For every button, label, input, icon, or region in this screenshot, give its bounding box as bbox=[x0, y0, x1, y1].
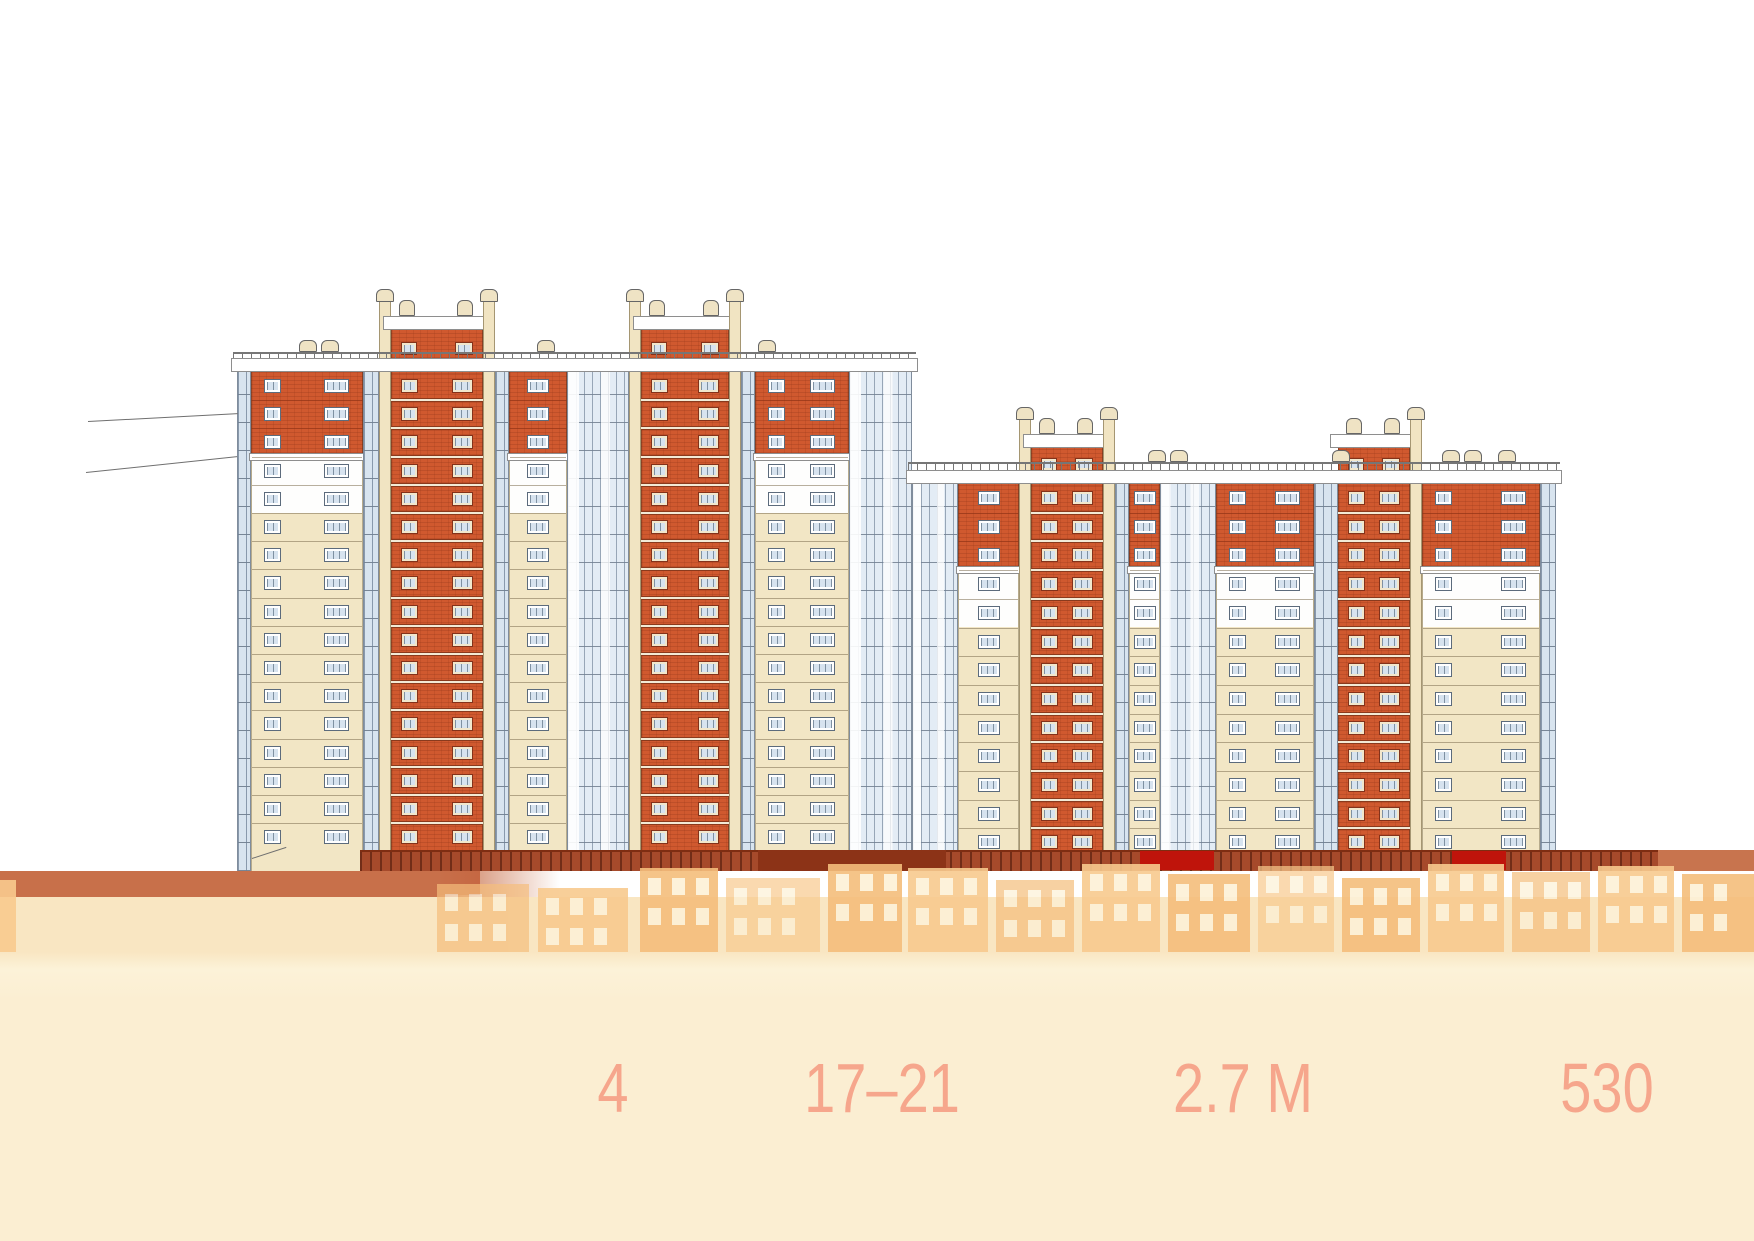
house-window bbox=[836, 904, 849, 921]
house-window bbox=[1436, 904, 1449, 921]
house-window bbox=[1052, 890, 1065, 907]
house-window bbox=[1460, 904, 1473, 921]
house-window bbox=[445, 894, 458, 911]
house-window bbox=[1398, 888, 1411, 905]
house-window bbox=[493, 894, 506, 911]
house-window bbox=[964, 908, 977, 925]
lowrise-house bbox=[1512, 872, 1590, 952]
house-window bbox=[940, 908, 953, 925]
lowrise-house bbox=[1428, 864, 1504, 952]
house-window bbox=[1568, 882, 1581, 899]
house-window bbox=[1630, 906, 1643, 923]
house-window bbox=[1606, 876, 1619, 893]
house-window bbox=[1374, 888, 1387, 905]
house-window bbox=[546, 898, 559, 915]
house-window bbox=[1484, 874, 1497, 891]
house-window bbox=[734, 918, 747, 935]
house-window bbox=[836, 874, 849, 891]
house-window bbox=[1004, 920, 1017, 937]
house-window bbox=[1654, 876, 1667, 893]
house-window bbox=[1714, 914, 1727, 931]
house-window bbox=[1568, 912, 1581, 929]
house-window bbox=[1314, 906, 1327, 923]
house-window bbox=[1544, 912, 1557, 929]
house-window bbox=[1350, 918, 1363, 935]
house-window bbox=[1114, 904, 1127, 921]
house-window bbox=[1544, 882, 1557, 899]
house-window bbox=[696, 878, 709, 895]
house-window bbox=[1520, 882, 1533, 899]
house-window bbox=[570, 898, 583, 915]
house-window bbox=[1714, 884, 1727, 901]
house-window bbox=[1484, 904, 1497, 921]
house-window bbox=[594, 898, 607, 915]
lowrise-house bbox=[538, 888, 628, 952]
house-window bbox=[758, 888, 771, 905]
house-window bbox=[1090, 874, 1103, 891]
house-window bbox=[1138, 874, 1151, 891]
house-window bbox=[1460, 874, 1473, 891]
house-window bbox=[758, 918, 771, 935]
house-window bbox=[916, 878, 929, 895]
house-window bbox=[672, 878, 685, 895]
house-window bbox=[1398, 918, 1411, 935]
house-window bbox=[1606, 906, 1619, 923]
house-window bbox=[782, 918, 795, 935]
residential-complex-elevation: 4 17–21 2.7 М 530 bbox=[0, 0, 1754, 1241]
house-window bbox=[1266, 876, 1279, 893]
house-window bbox=[964, 878, 977, 895]
house-window bbox=[1028, 890, 1041, 907]
house-window bbox=[594, 928, 607, 945]
lowrise-house bbox=[828, 864, 902, 952]
house-window bbox=[1028, 920, 1041, 937]
lowrise-house bbox=[1082, 864, 1160, 952]
lowrise-house bbox=[1258, 866, 1334, 952]
house-window bbox=[1176, 914, 1189, 931]
house-window bbox=[940, 878, 953, 895]
house-window bbox=[1654, 906, 1667, 923]
house-window bbox=[1630, 876, 1643, 893]
house-window bbox=[469, 894, 482, 911]
house-window bbox=[648, 878, 661, 895]
house-window bbox=[734, 888, 747, 905]
house-window bbox=[860, 904, 873, 921]
house-window bbox=[546, 928, 559, 945]
house-window bbox=[1114, 874, 1127, 891]
lowrise-house bbox=[1682, 874, 1754, 952]
house-window bbox=[1374, 918, 1387, 935]
lowrise-house bbox=[437, 884, 529, 952]
house-window bbox=[782, 888, 795, 905]
house-window bbox=[1290, 876, 1303, 893]
house-window bbox=[1200, 884, 1213, 901]
house-window bbox=[1690, 884, 1703, 901]
house-window bbox=[1266, 906, 1279, 923]
house-window bbox=[1052, 920, 1065, 937]
house-window bbox=[493, 924, 506, 941]
house-window bbox=[672, 908, 685, 925]
house-window bbox=[884, 904, 897, 921]
stat-value-buildings: 4 bbox=[597, 1053, 628, 1123]
house-window bbox=[1224, 914, 1237, 931]
house-window bbox=[570, 928, 583, 945]
house-window bbox=[916, 908, 929, 925]
house-window bbox=[445, 924, 458, 941]
lowrise-house bbox=[1342, 878, 1420, 952]
house-window bbox=[1138, 904, 1151, 921]
lowrise-house bbox=[1168, 874, 1250, 952]
lowrise-house bbox=[640, 868, 718, 952]
lowrise-house bbox=[0, 880, 16, 952]
house-window bbox=[1224, 884, 1237, 901]
house-window bbox=[1290, 906, 1303, 923]
stat-value-floors: 17–21 bbox=[804, 1053, 960, 1123]
lowrise-house bbox=[996, 880, 1074, 952]
house-window bbox=[1436, 874, 1449, 891]
lowrise-house bbox=[726, 878, 820, 952]
lowrise-house bbox=[908, 868, 988, 952]
lowrise-house bbox=[1598, 866, 1674, 952]
stat-value-apartments: 530 bbox=[1560, 1053, 1653, 1123]
house-window bbox=[1520, 912, 1533, 929]
house-window bbox=[1350, 888, 1363, 905]
house-window bbox=[1314, 876, 1327, 893]
house-window bbox=[1200, 914, 1213, 931]
house-window bbox=[860, 874, 873, 891]
house-window bbox=[1690, 914, 1703, 931]
house-window bbox=[1004, 890, 1017, 907]
house-window bbox=[648, 908, 661, 925]
house-window bbox=[696, 908, 709, 925]
stat-value-ceiling: 2.7 М bbox=[1173, 1053, 1313, 1123]
house-window bbox=[469, 924, 482, 941]
house-window bbox=[1176, 884, 1189, 901]
house-window bbox=[1090, 904, 1103, 921]
house-window bbox=[884, 874, 897, 891]
